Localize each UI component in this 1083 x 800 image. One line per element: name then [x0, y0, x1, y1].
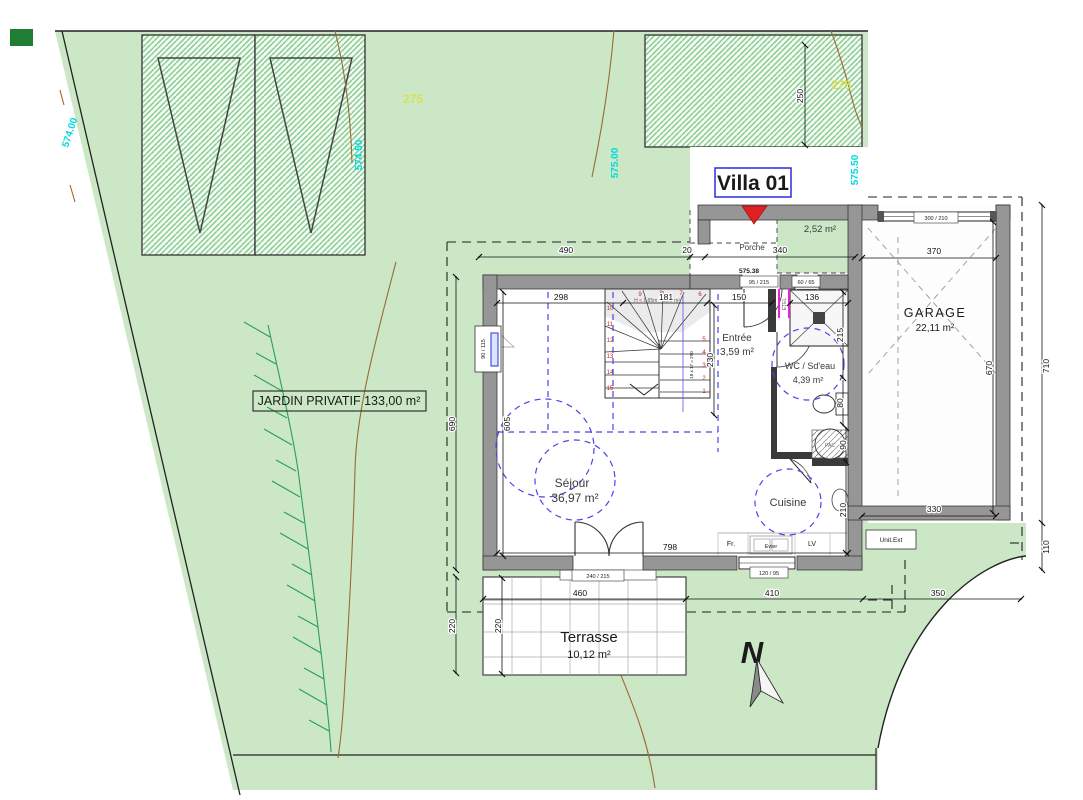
dim-230: 230 [705, 353, 715, 367]
dim-136: 136 [805, 292, 819, 302]
french-door-size-label: 240 / 215 [586, 574, 609, 580]
villa-title-text: Villa 01 [717, 172, 789, 195]
parking-stall-2 [255, 35, 365, 255]
hedge-block [10, 29, 33, 46]
porch-wall-stub [698, 220, 710, 244]
dim-20: 20 [682, 245, 692, 255]
house-left-wall [483, 275, 497, 327]
dim-220-inner: 220 [493, 619, 503, 633]
room-label-wc: WC / Sd'eau [785, 361, 835, 371]
area-label-garage: 22,11 m² [916, 323, 955, 334]
dim-340: 340 [773, 245, 787, 255]
house-bottom-wall [483, 556, 573, 570]
parcel-number-right: 275 [831, 78, 851, 92]
room-label-garage: GARAGE [904, 306, 967, 320]
toilet [813, 395, 835, 413]
dim-410: 410 [765, 588, 779, 598]
garage-door-size-label: 300 / 210 [924, 216, 947, 222]
room-label-sejour: Séjour [555, 476, 590, 490]
level-575-38: 575.38 [739, 268, 759, 275]
sink-label: Evier [765, 544, 778, 550]
dim-298: 298 [554, 292, 568, 302]
dim-150: 150 [732, 292, 746, 302]
garage-right-wall [996, 205, 1010, 520]
area-label-porche: 2,52 m² [804, 224, 836, 235]
room-label-entree: Entrée [722, 333, 752, 344]
floor-plan-canvas: 300 / 210 Unit.Ext 90 / 115 120 / 95 60 … [0, 0, 1083, 800]
area-label-wc: 4,39 m² [793, 375, 824, 385]
jardin-label-text: JARDIN PRIVATIF 133,00 m² [258, 394, 421, 408]
level-574-00: 574.00 [60, 116, 80, 149]
site-plan-svg: 300 / 210 Unit.Ext 90 / 115 120 / 95 60 … [0, 0, 1083, 800]
dim-110: 110 [1041, 540, 1051, 554]
porch-green-pad [777, 213, 853, 273]
dim-798: 798 [663, 542, 677, 552]
area-label-sejour: 36,97 m² [551, 491, 598, 505]
dishwasher-label: LV [808, 541, 816, 548]
sejour-window-size-label: 90 / 115 [481, 339, 487, 359]
stair-calc-note: 18 x 17 = 290 [689, 351, 694, 379]
dim-215: 215 [835, 328, 845, 342]
dim-370: 370 [927, 246, 941, 256]
villa-title: Villa 01 [715, 168, 791, 197]
room-label-cuisine: Cuisine [770, 497, 807, 509]
front-door-size-label: 95 / 215 [749, 280, 769, 286]
dim-490: 490 [559, 245, 573, 255]
room-label-porche: Porche [739, 243, 765, 252]
dim-220-outer: 220 [447, 619, 457, 633]
house-top-wall-left [483, 275, 690, 289]
level-575-00: 575.00 [610, 147, 621, 178]
dim-690: 690 [447, 417, 457, 431]
dim-330: 330 [927, 504, 941, 514]
dim-350: 350 [931, 588, 945, 598]
fridge-short-label: Fr. [727, 541, 735, 548]
heat-pump-label: PAC [825, 443, 835, 449]
area-label-entree: 3,59 m² [720, 347, 755, 358]
area-label-terrasse: 10,12 m² [567, 649, 611, 661]
dim-90: 90 [838, 440, 848, 450]
parcel-number-left: 275 [403, 92, 423, 106]
dim-250: 250 [795, 89, 805, 103]
exterior-unit-label: Unit.Ext [880, 537, 903, 544]
level-574-50: 574.50 [354, 139, 365, 170]
dim-710: 710 [1041, 359, 1051, 373]
level-575-50: 575.50 [850, 154, 861, 185]
dim-605: 605 [502, 417, 512, 431]
electrical-panel-label: ETEL [782, 298, 788, 311]
dim-460: 460 [573, 588, 587, 598]
dim-670: 670 [984, 361, 994, 375]
wc-window-size-label: 60 / 65 [797, 280, 814, 286]
dim-181: 181 [659, 292, 673, 302]
kitchen-window-size-label: 120 / 95 [759, 571, 779, 577]
dim-80: 80 [835, 398, 845, 408]
room-label-terrasse: Terrasse [560, 629, 618, 646]
parking-stall-3 [645, 35, 862, 147]
dim-210: 210 [838, 503, 848, 517]
